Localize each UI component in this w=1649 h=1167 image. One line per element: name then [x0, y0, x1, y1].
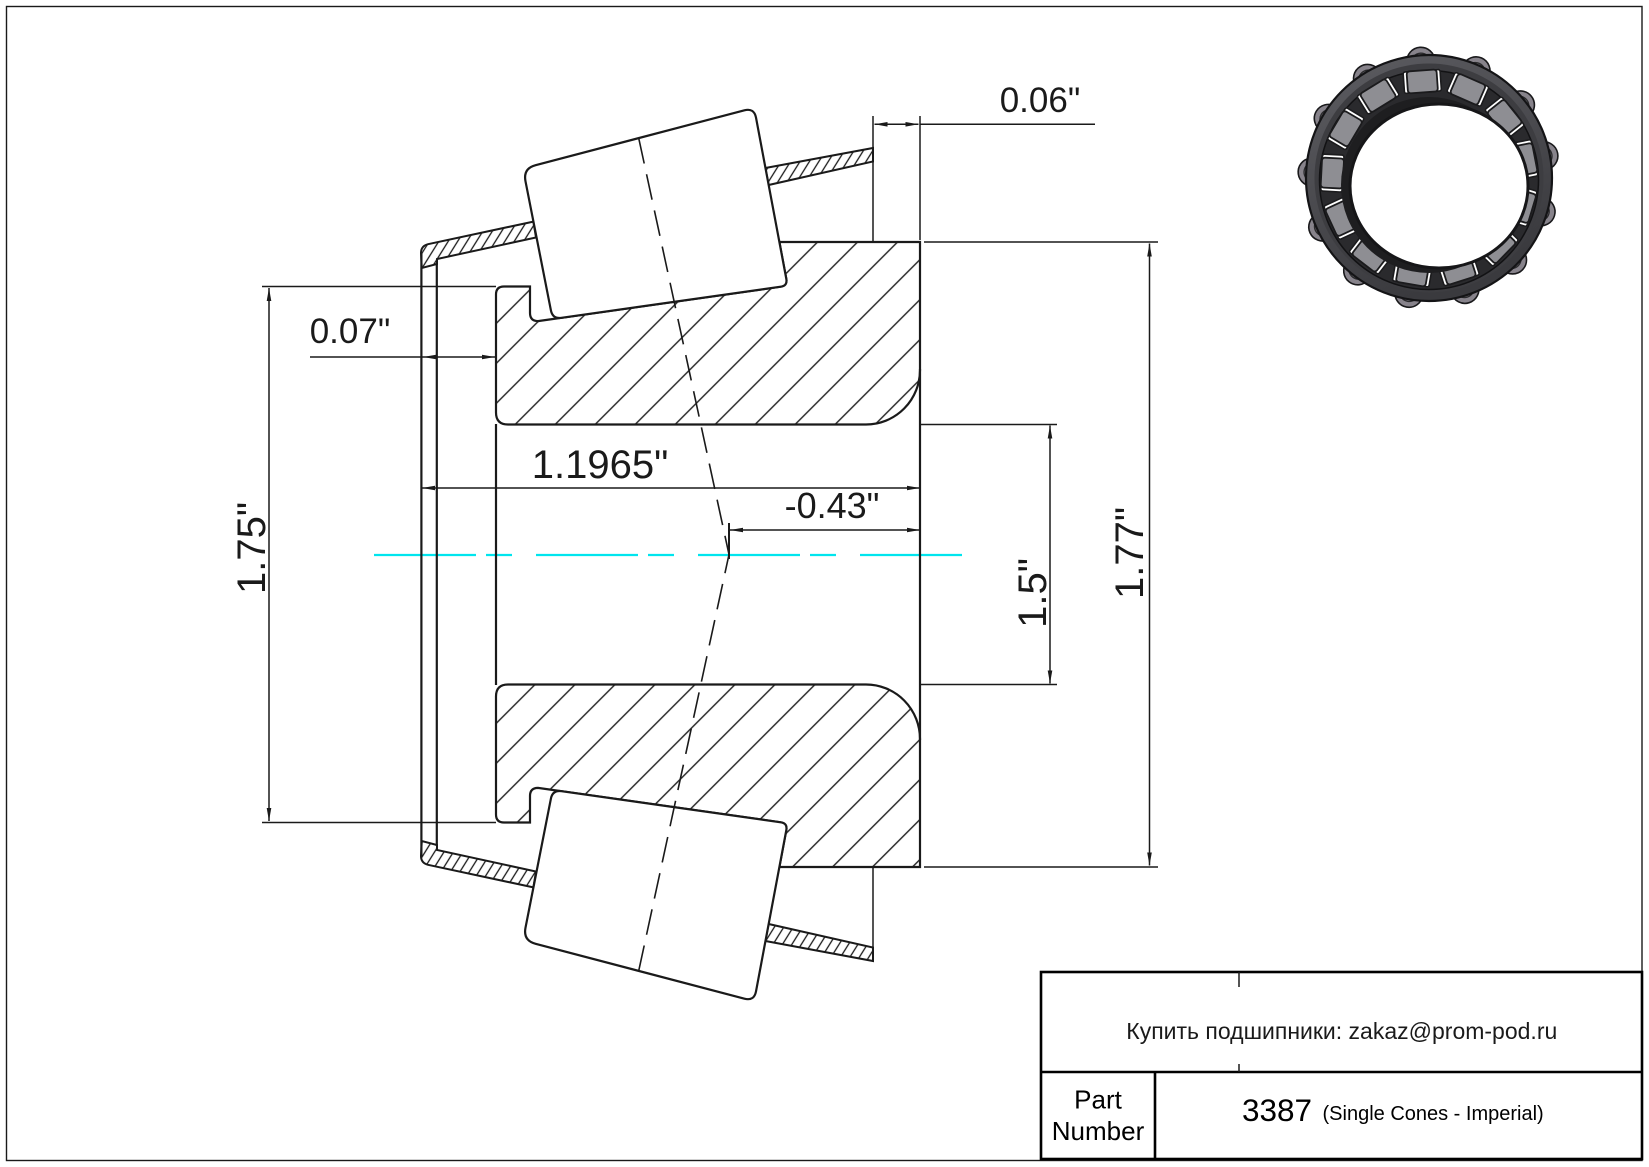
svg-text:Купить подшипники: zakaz@prom-: Купить подшипники: zakaz@prom-pod.ru	[1126, 1018, 1557, 1044]
svg-text:1.1965": 1.1965"	[532, 443, 669, 487]
svg-text:Number: Number	[1052, 1116, 1145, 1146]
svg-text:0.07": 0.07"	[310, 312, 391, 351]
svg-text:1.77": 1.77"	[1108, 507, 1152, 599]
svg-text:3387: 3387	[1242, 1092, 1312, 1128]
svg-text:0.06": 0.06"	[1000, 81, 1081, 120]
svg-text:1.5": 1.5"	[1011, 558, 1055, 628]
svg-text:1.75": 1.75"	[230, 502, 274, 594]
svg-text:Part: Part	[1074, 1085, 1122, 1115]
svg-text:-0.43": -0.43"	[785, 485, 880, 526]
svg-text:(Single Cones - Imperial): (Single Cones - Imperial)	[1323, 1103, 1544, 1125]
